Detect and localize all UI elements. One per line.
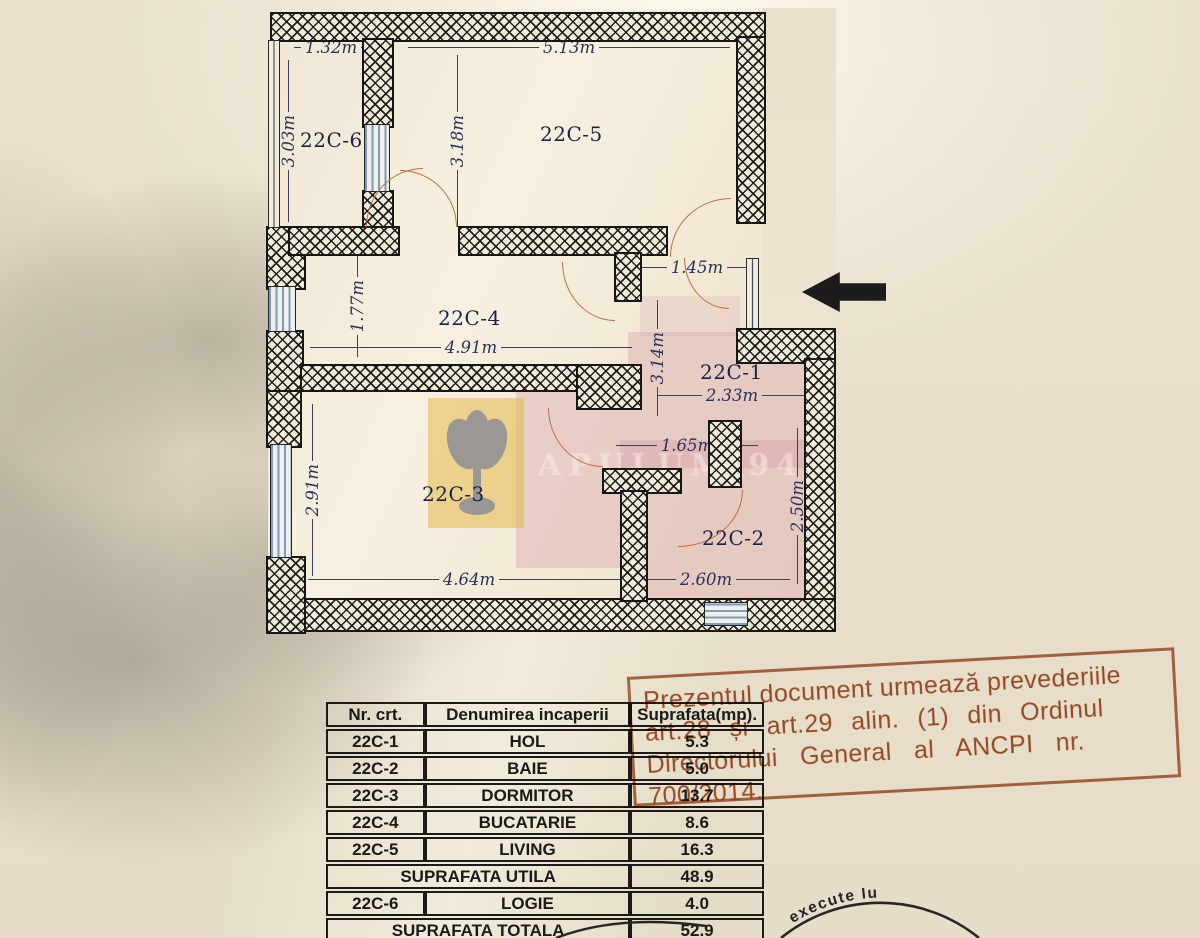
cell-name: BAIE xyxy=(425,756,631,781)
cell-name: DORMITOR xyxy=(425,783,631,808)
window xyxy=(270,444,292,558)
window xyxy=(268,286,296,332)
header-nr: Nr. crt. xyxy=(326,702,425,727)
dim-3-03: 3.03m xyxy=(279,60,298,222)
wall-segment xyxy=(266,388,302,448)
cell-nr: 22C-1 xyxy=(326,729,425,754)
wall-segment xyxy=(266,556,306,634)
table-summary-row: SUPRAFATA UTILA 48.9 xyxy=(326,864,764,889)
dim-2-33: 2.33m xyxy=(658,386,806,405)
scanned-floor-plan-document: APULUM 94 1.32m 5.13m 3.03m 3.18m 1.77m … xyxy=(0,0,1200,938)
stamp-arc-left xyxy=(556,922,706,938)
cell-nr: 22C-5 xyxy=(326,837,425,862)
round-stamp-arc: execute lu xyxy=(548,888,1028,938)
room-label-22C-5: 22C-5 xyxy=(540,122,603,146)
cell-utila-area: 48.9 xyxy=(630,864,764,889)
loggia-glazing-wall xyxy=(268,40,280,228)
wall-thin-segment xyxy=(746,258,759,332)
room-label-22C-2: 22C-2 xyxy=(702,526,765,550)
dim-2-91: 2.91m xyxy=(303,404,322,576)
ancpi-rect-stamp: Prezentul document urmează prevederiile … xyxy=(627,647,1181,806)
cell-utila-label: SUPRAFATA UTILA xyxy=(326,864,630,889)
cell-name: LIVING xyxy=(425,837,631,862)
cell-name: HOL xyxy=(425,729,631,754)
dim-4-91: 4.91m xyxy=(310,338,632,357)
wall-segment xyxy=(288,226,400,256)
table-row: 22C-5 LIVING 16.3 xyxy=(326,837,764,862)
wall-segment xyxy=(270,12,766,42)
wall-segment xyxy=(614,252,642,302)
header-name: Denumirea incaperii xyxy=(425,702,631,727)
cell-area: 16.3 xyxy=(630,837,764,862)
cell-name: BUCATARIE xyxy=(425,810,631,835)
wall-segment xyxy=(266,330,304,392)
cell-nr: 22C-6 xyxy=(326,891,425,916)
cell-area: 8.6 xyxy=(630,810,764,835)
cell-nr: 22C-2 xyxy=(326,756,425,781)
window xyxy=(704,602,748,626)
cell-nr: 22C-4 xyxy=(326,810,425,835)
wall-segment xyxy=(300,364,618,392)
wall-segment xyxy=(736,36,766,224)
room-label-22C-3: 22C-3 xyxy=(422,482,485,506)
wall-segment xyxy=(620,490,648,602)
dim-4-64: 4.64m xyxy=(308,570,630,589)
round-stamp-text: execute lu xyxy=(786,888,879,927)
wall-segment xyxy=(708,420,742,488)
room-label-22C-1: 22C-1 xyxy=(700,360,763,384)
wall-segment xyxy=(300,598,836,632)
wall-segment xyxy=(576,364,642,410)
wall-segment xyxy=(804,358,836,604)
room-label-22C-4: 22C-4 xyxy=(438,306,501,330)
cell-nr: 22C-3 xyxy=(326,783,425,808)
room-label-22C-6: 22C-6 xyxy=(300,128,363,152)
wall-segment xyxy=(362,38,394,128)
table-row: 22C-4 BUCATARIE 8.6 xyxy=(326,810,764,835)
